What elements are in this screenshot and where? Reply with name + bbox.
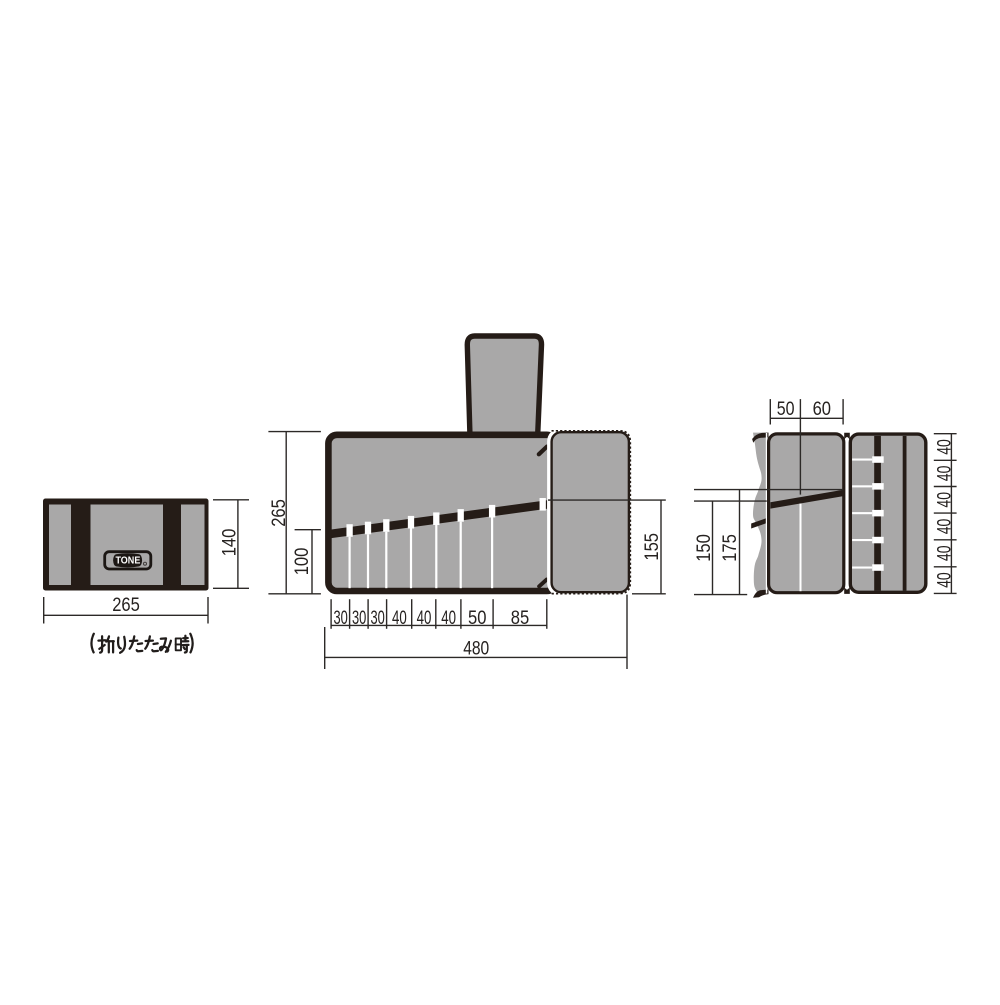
svg-text:175: 175	[719, 534, 741, 562]
svg-text:40: 40	[933, 519, 955, 535]
svg-text:480: 480	[463, 637, 489, 659]
svg-text:265: 265	[112, 594, 140, 616]
svg-text:140: 140	[218, 529, 240, 557]
svg-text:85: 85	[511, 607, 529, 629]
svg-text:40: 40	[933, 545, 955, 561]
svg-text:100: 100	[291, 548, 313, 576]
svg-text:40: 40	[392, 606, 407, 628]
svg-text:30: 30	[370, 606, 384, 628]
svg-text:40: 40	[933, 492, 955, 508]
svg-text:150: 150	[693, 534, 715, 562]
svg-text:50: 50	[777, 398, 795, 420]
svg-text:265: 265	[268, 499, 290, 527]
svg-text:40: 40	[933, 439, 955, 455]
svg-text:40: 40	[417, 606, 432, 628]
svg-text:30: 30	[333, 606, 347, 628]
svg-text:40: 40	[933, 466, 955, 482]
svg-text:155: 155	[641, 533, 663, 561]
svg-text:30: 30	[352, 606, 366, 628]
svg-text:TONE: TONE	[115, 554, 140, 565]
svg-text:40: 40	[441, 606, 456, 628]
svg-text:40: 40	[933, 572, 955, 588]
svg-text:60: 60	[813, 398, 831, 420]
svg-text:50: 50	[468, 607, 486, 629]
